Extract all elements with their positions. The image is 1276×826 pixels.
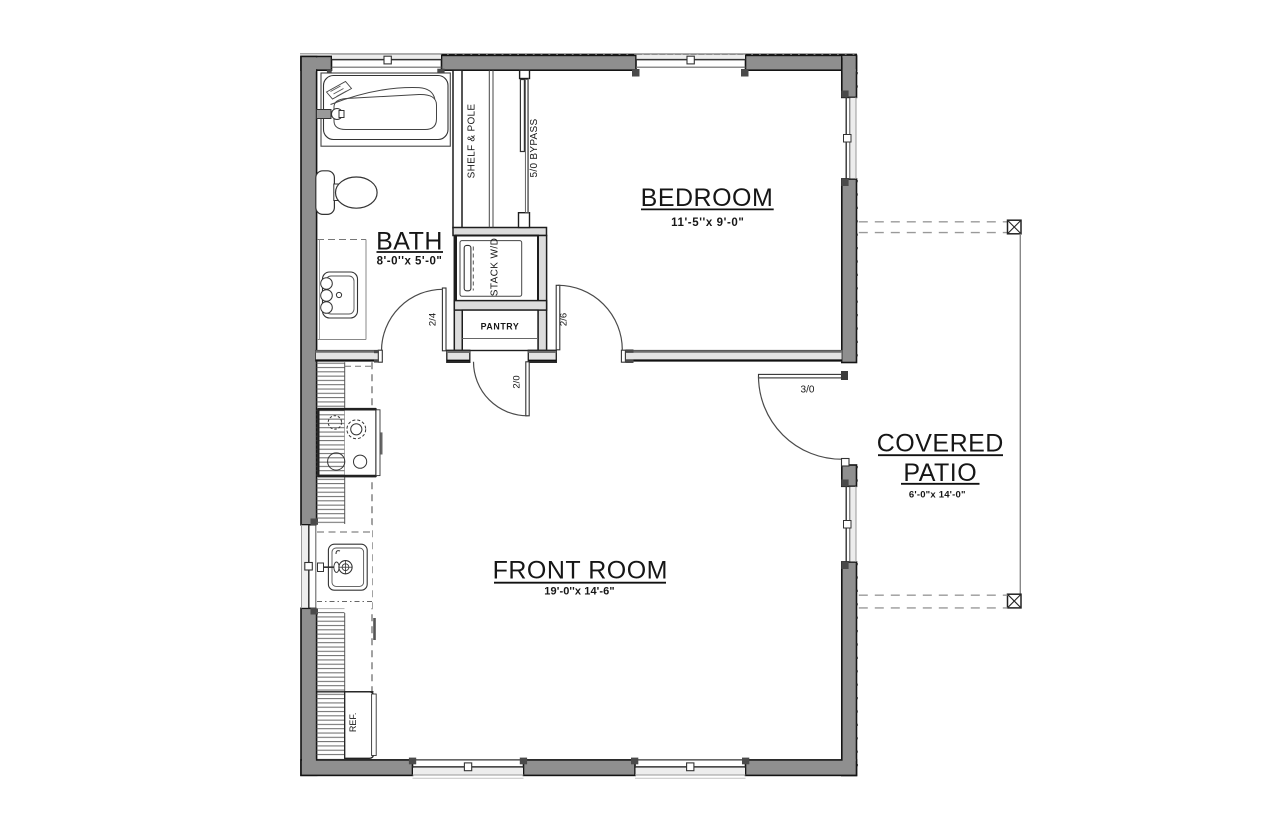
svg-text:SHELF & POLE: SHELF & POLE — [467, 104, 478, 179]
svg-text:6'-0"x 14'-0": 6'-0"x 14'-0" — [909, 490, 966, 501]
svg-text:11'-5''x 9'-0": 11'-5''x 9'-0" — [671, 217, 744, 229]
svg-text:COVERED: COVERED — [877, 430, 1004, 458]
svg-text:PANTRY: PANTRY — [481, 322, 520, 332]
svg-text:PATIO: PATIO — [903, 459, 977, 487]
svg-text:5/0 BYPASS: 5/0 BYPASS — [529, 118, 540, 177]
svg-text:STACK W/D: STACK W/D — [490, 238, 501, 296]
svg-text:BEDROOM: BEDROOM — [641, 184, 774, 212]
svg-text:8'-0''x 5'-0": 8'-0''x 5'-0" — [377, 256, 443, 268]
svg-text:19'-0''x 14'-6": 19'-0''x 14'-6" — [544, 586, 614, 598]
svg-text:REF.: REF. — [348, 713, 358, 733]
svg-text:2/0: 2/0 — [512, 375, 523, 388]
svg-text:FRONT ROOM: FRONT ROOM — [493, 557, 668, 585]
svg-text:2/6: 2/6 — [559, 313, 570, 326]
svg-text:3/0: 3/0 — [801, 385, 815, 396]
svg-text:2/4: 2/4 — [428, 313, 439, 326]
